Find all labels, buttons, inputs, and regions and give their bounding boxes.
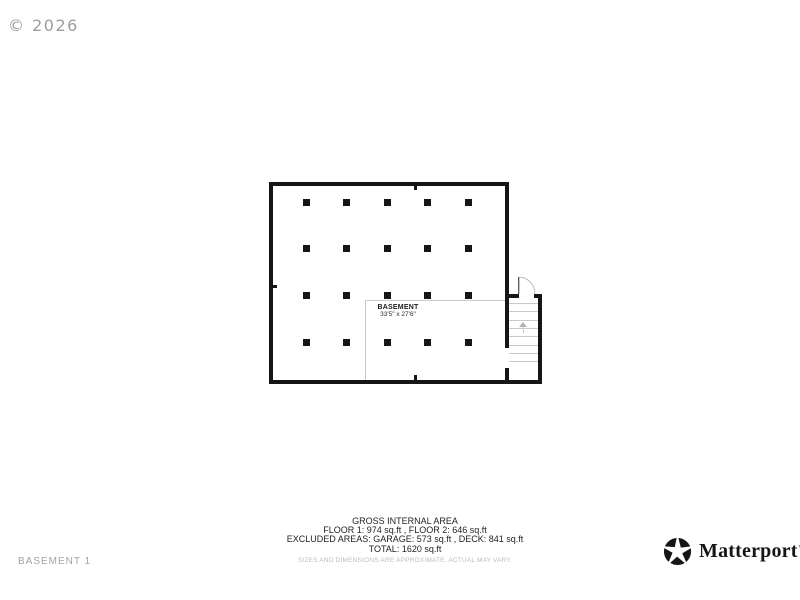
stair-tread	[509, 345, 538, 346]
wall-left	[269, 182, 273, 384]
support-post	[343, 245, 350, 252]
support-post	[465, 292, 472, 299]
wall-junction-tick-left	[273, 285, 277, 288]
page-label: BASEMENT 1	[18, 556, 91, 567]
matterport-branding: Matterport™	[662, 536, 800, 567]
stair-tread	[509, 303, 538, 304]
stair-tread	[509, 328, 538, 329]
support-post	[343, 339, 350, 346]
support-post	[424, 292, 431, 299]
support-post	[384, 199, 391, 206]
support-post	[465, 199, 472, 206]
support-post	[424, 199, 431, 206]
wall-right-lower	[505, 368, 509, 384]
stair-tread	[509, 336, 538, 337]
support-post	[303, 292, 310, 299]
door-swing-icon	[518, 277, 536, 295]
stair-tread	[509, 320, 538, 321]
support-post	[465, 339, 472, 346]
support-post	[465, 245, 472, 252]
support-post	[384, 292, 391, 299]
stairs-up-arrow-stem	[523, 327, 524, 333]
copyright-watermark: © 2026	[8, 16, 79, 35]
wall-junction-tick-top	[414, 186, 417, 190]
support-post	[384, 245, 391, 252]
support-post	[303, 245, 310, 252]
wall-right-upper	[505, 182, 509, 348]
area-summary: GROSS INTERNAL AREA FLOOR 1: 974 sq.ft ,…	[255, 517, 555, 565]
area-summary-total: TOTAL: 1620 sq.ft	[255, 545, 555, 554]
stair-tread	[509, 353, 538, 354]
stair-wall-right	[538, 294, 542, 384]
wall-top	[269, 182, 509, 186]
support-post	[343, 199, 350, 206]
area-summary-disclaimer: SIZES AND DIMENSIONS ARE APPROXIMATE, AC…	[255, 556, 555, 565]
room-name: BASEMENT	[365, 304, 431, 311]
wall-junction-tick-bottom	[414, 375, 417, 380]
matterport-logo-text: Matterport™	[699, 540, 800, 563]
support-post	[343, 292, 350, 299]
support-post	[424, 339, 431, 346]
support-post	[303, 339, 310, 346]
matterport-logo-icon	[662, 536, 693, 567]
stair-tread	[509, 361, 538, 362]
stair-wall-top-left	[505, 294, 519, 298]
support-post	[384, 339, 391, 346]
wall-bottom	[269, 380, 542, 384]
support-post	[303, 199, 310, 206]
room-label: BASEMENT 33'5" x 27'6"	[365, 304, 431, 318]
room-dimensions: 33'5" x 27'6"	[365, 311, 431, 318]
room-boundary-top	[365, 300, 505, 301]
stair-tread	[509, 311, 538, 312]
support-post	[424, 245, 431, 252]
